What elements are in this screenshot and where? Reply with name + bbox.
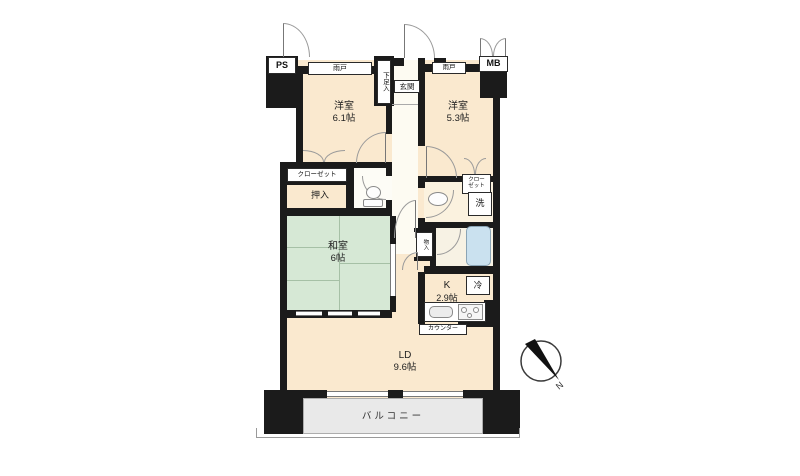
bedroom2-label: 洋室5.3帖 [425, 98, 491, 128]
wall [280, 208, 392, 216]
sliding-door [390, 244, 396, 296]
window [327, 391, 388, 397]
door-arc [493, 38, 506, 56]
sliding-door [296, 311, 380, 316]
laundry-box: 洗 [468, 192, 492, 216]
burner-icon [473, 307, 479, 313]
wall [322, 311, 328, 316]
closet-box: クローゼット [287, 168, 347, 182]
fridge-box: 冷 [466, 276, 490, 295]
tatami-line [287, 280, 339, 281]
wall [388, 390, 403, 398]
wall [394, 58, 404, 66]
closet-box: クローゼット [462, 174, 491, 194]
wall [386, 106, 392, 134]
balcony-outline [256, 437, 520, 438]
floor-plan: バルコニー PS MB 雨戸 雨戸 下足入 玄関 クローゼット クローゼット 洗… [0, 0, 800, 476]
ld-label: LD9.6帖 [384, 348, 426, 376]
toilet-icon [366, 186, 381, 199]
wall [287, 182, 346, 185]
wall [418, 58, 425, 146]
balcony-label: バルコニー [340, 410, 446, 424]
wall [280, 162, 287, 398]
door-arc [283, 23, 310, 57]
door-arc [404, 24, 435, 58]
storm-shutter-label: 雨戸 [308, 62, 372, 75]
toilet-icon [363, 199, 383, 207]
bathtub-icon [466, 226, 491, 266]
oshiire-label: 押入 [296, 189, 344, 203]
storm-shutter-label: 雨戸 [432, 62, 466, 74]
wall [493, 70, 500, 398]
pipe-space-box: PS [268, 57, 296, 74]
wall [296, 66, 303, 168]
wall [352, 311, 358, 316]
counter-label: カウンター [419, 324, 467, 335]
balcony-outline [519, 428, 520, 437]
compass-north-icon: N [515, 334, 575, 402]
door-arc [480, 38, 493, 56]
pillar [264, 390, 304, 434]
sink-icon [429, 306, 453, 318]
step-line [392, 104, 418, 105]
burner-icon [467, 313, 472, 318]
entrance-label: 玄関 [394, 80, 420, 93]
burner-icon [461, 307, 467, 313]
washbasin-icon [428, 192, 448, 206]
window [403, 391, 463, 397]
wall [418, 176, 425, 188]
wall [424, 266, 493, 274]
storage-box: 物入 [416, 232, 433, 257]
svg-text:N: N [554, 380, 565, 392]
meter-box: MB [479, 56, 508, 72]
balcony-outline [256, 428, 257, 437]
washitsu-label: 和室6帖 [313, 238, 363, 268]
wall [346, 162, 354, 214]
bedroom1-label: 洋室6.1帖 [304, 98, 384, 128]
